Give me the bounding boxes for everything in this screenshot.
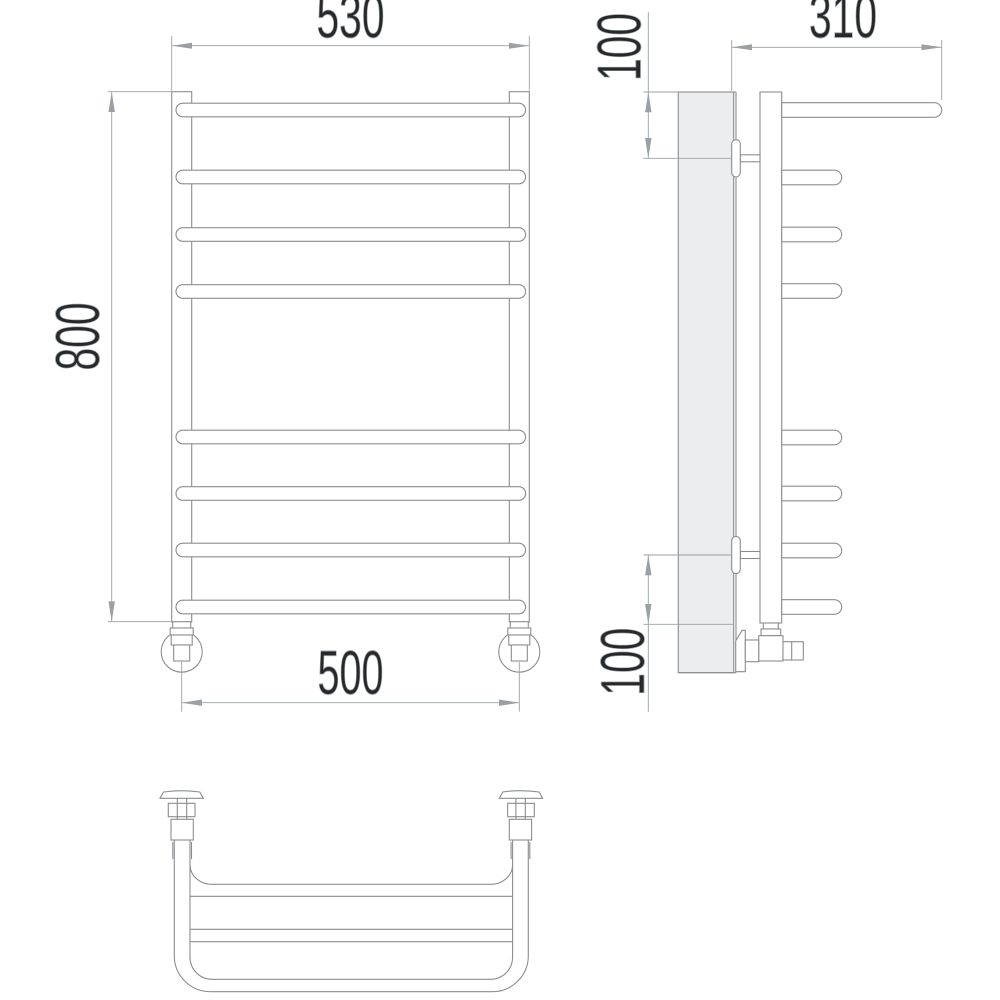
technical-drawing-canvas: 530 800 500 310 [0, 0, 1000, 1000]
plan-left-valve-fitting [160, 791, 203, 859]
front-bar-1 [176, 103, 526, 117]
arrow-up-icon [645, 555, 651, 575]
front-bar-3 [176, 228, 526, 242]
arrow-down-icon [645, 604, 651, 624]
dim-front-width-bottom: 500 [182, 639, 520, 712]
front-bar-2 [176, 170, 526, 184]
side-bars [782, 103, 942, 615]
dim-label-310: 310 [809, 0, 877, 52]
arrow-right-icon [921, 44, 941, 50]
upper-wall-bracket [732, 140, 760, 177]
dim-label-530: 530 [317, 0, 385, 52]
arrow-left-icon [732, 44, 752, 50]
front-bars [176, 103, 526, 614]
side-bottom-valve [736, 623, 804, 672]
dim-side-depth: 310 [732, 0, 942, 100]
dim-label-800: 800 [44, 303, 113, 371]
front-view [161, 92, 540, 673]
arrow-right-icon [499, 700, 519, 706]
front-bar-4 [176, 285, 526, 299]
front-bar-5 [176, 430, 526, 444]
dim-label-100-top: 100 [586, 13, 655, 81]
dim-front-width-top: 530 [172, 0, 530, 91]
side-view [678, 92, 941, 673]
arrow-up-icon [645, 92, 651, 112]
lower-wall-bracket [732, 536, 760, 573]
dim-front-height: 800 [44, 92, 172, 622]
arrow-left-icon [172, 43, 192, 49]
dim-label-500: 500 [318, 639, 384, 708]
plan-inner-u-tube [190, 840, 513, 979]
arrow-right-icon [509, 43, 529, 49]
arrow-down-icon [645, 138, 651, 158]
arrow-left-icon [182, 700, 202, 706]
plan-outer-u-tube [174, 840, 528, 992]
pipe-cover [736, 630, 746, 671]
front-bar-8 [176, 600, 526, 614]
wall-strip [678, 92, 733, 673]
towel-rail-drawing: 530 800 500 310 [0, 0, 1000, 1000]
arrow-down-icon [109, 601, 115, 621]
dim-label-100-bottom: 100 [589, 628, 658, 696]
plan-view [160, 791, 543, 992]
side-post [760, 92, 782, 623]
plan-bars [190, 865, 513, 942]
front-bar-6 [176, 487, 526, 501]
arrow-up-icon [109, 92, 115, 112]
plan-right-valve-fitting [499, 791, 542, 859]
front-bar-7 [176, 543, 526, 557]
side-top-shelf-bar [782, 103, 942, 118]
